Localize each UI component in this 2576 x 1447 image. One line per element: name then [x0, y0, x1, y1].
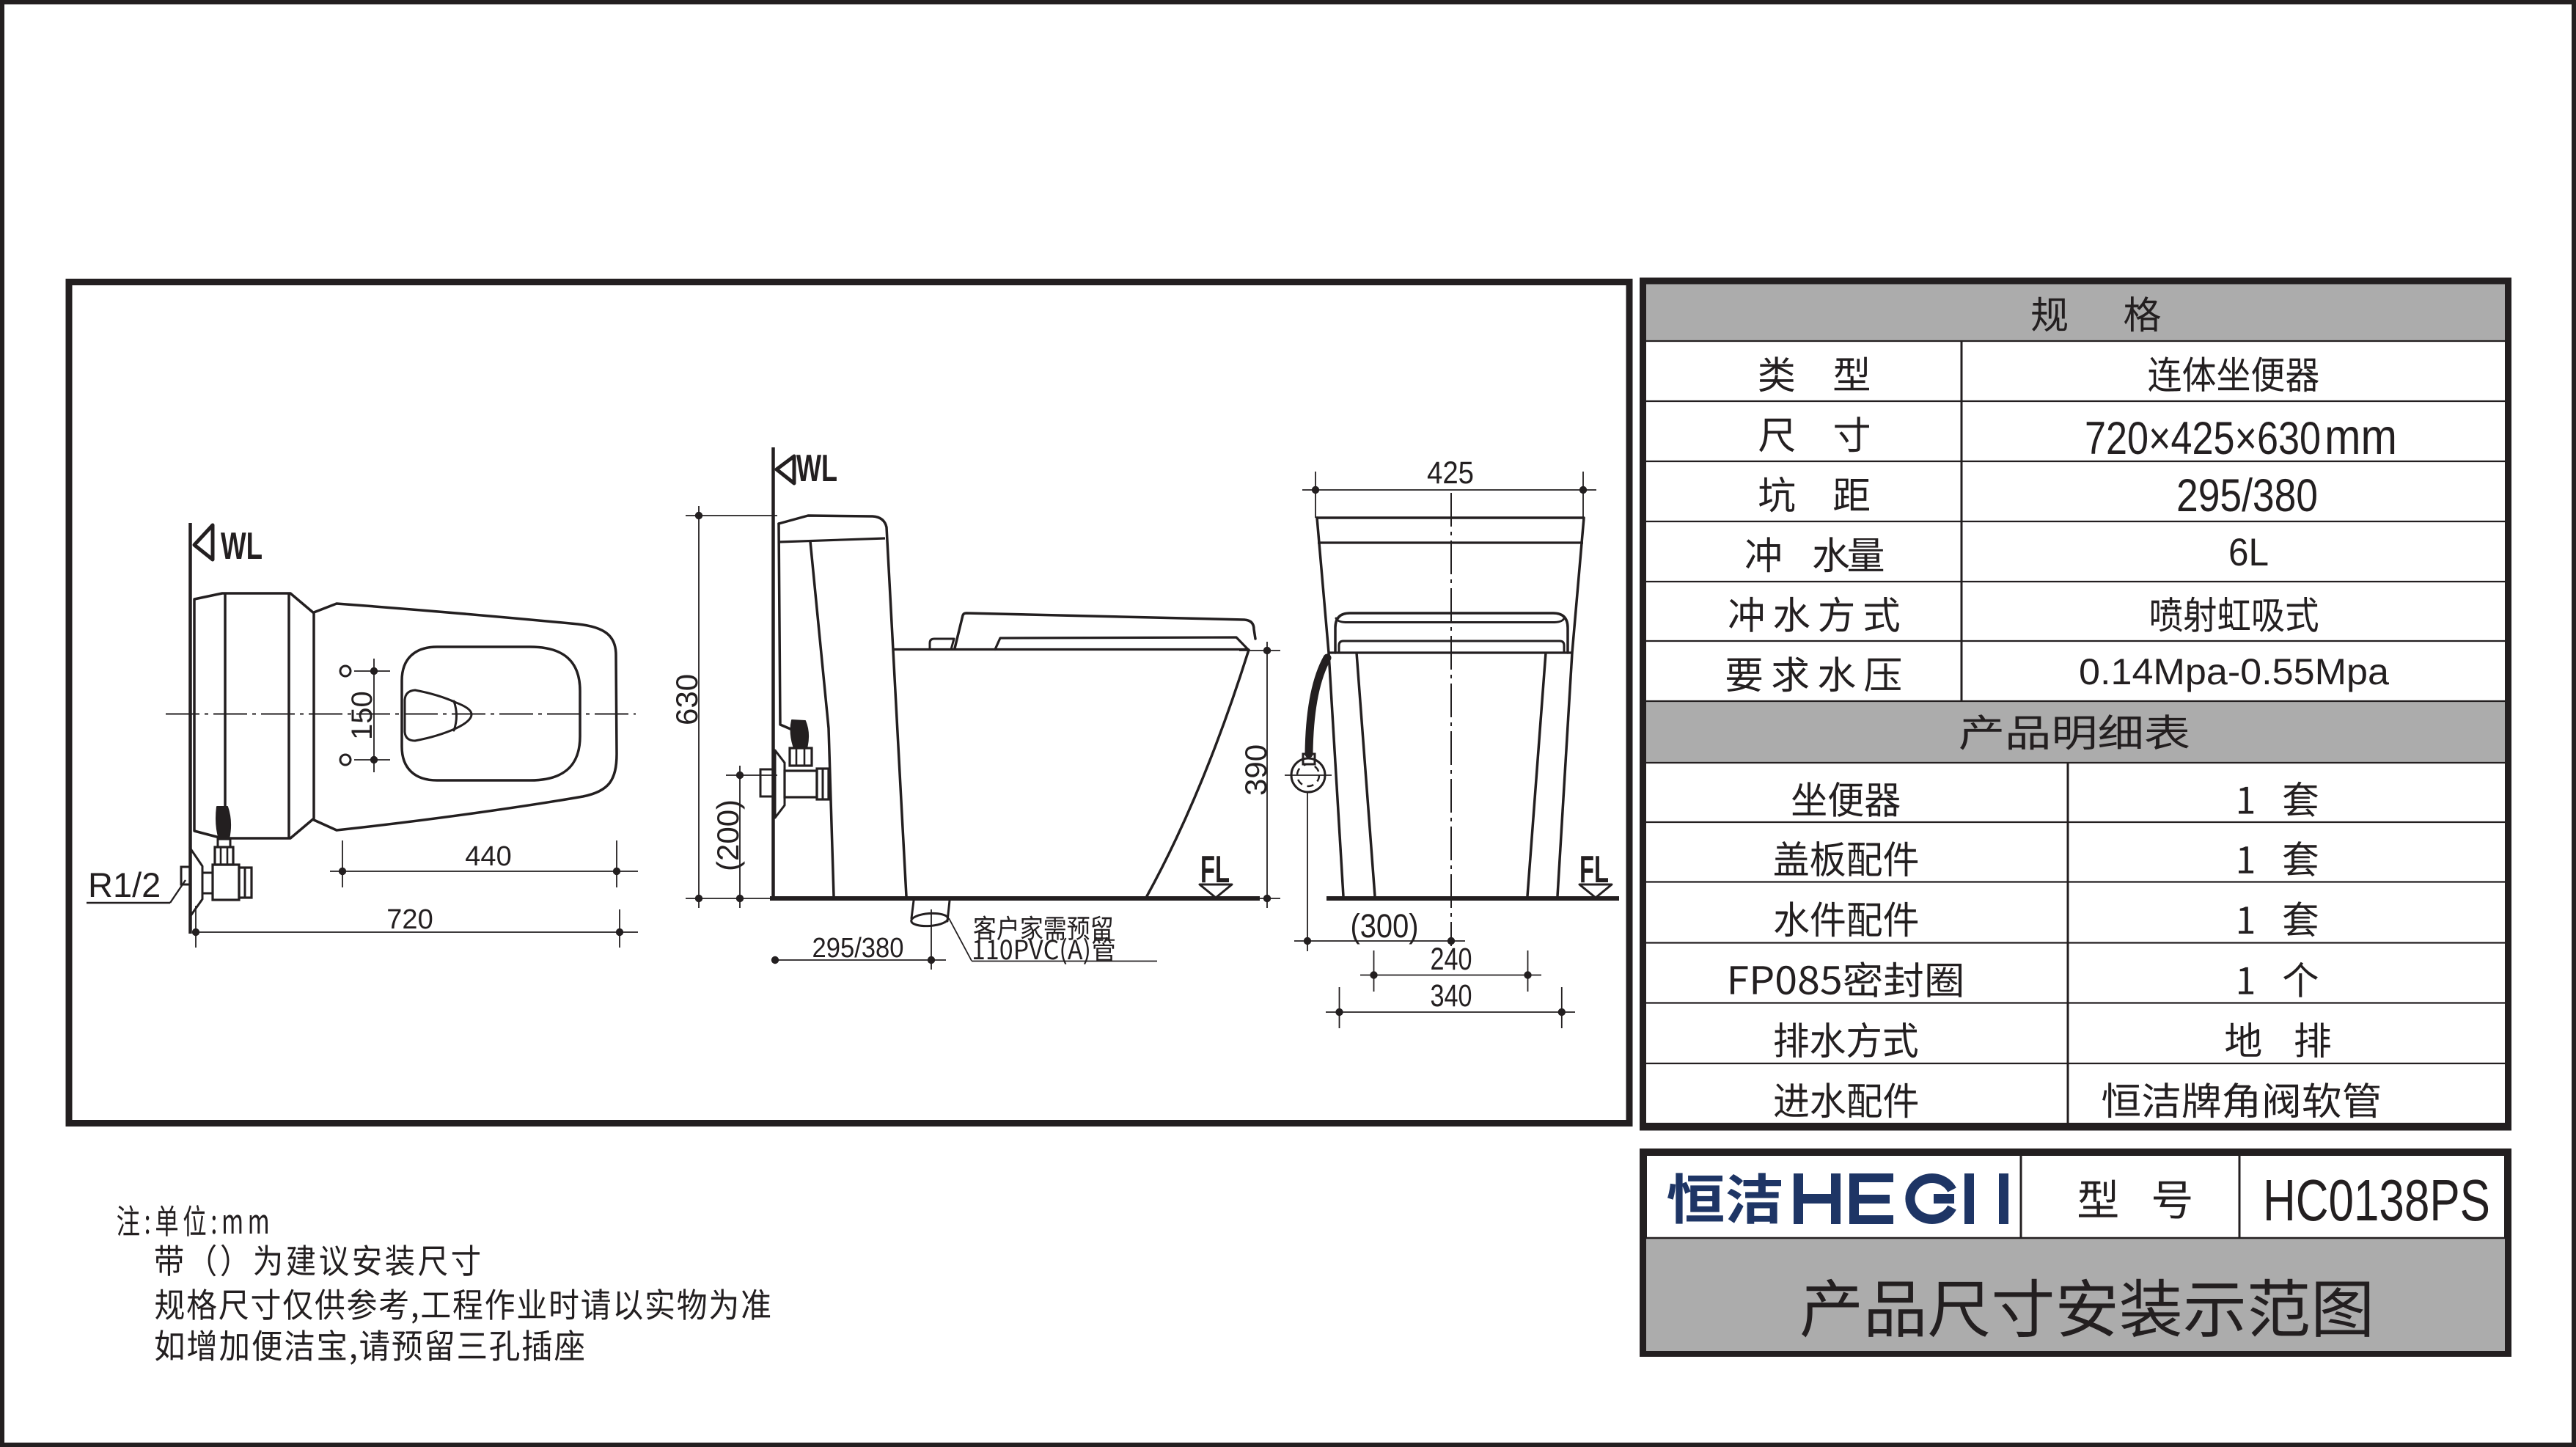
svg-text:150: 150 [346, 691, 378, 740]
svg-text:340: 340 [1431, 978, 1472, 1014]
svg-text:HC0138PS: HC0138PS [2263, 1168, 2490, 1233]
svg-text:440: 440 [465, 841, 511, 872]
svg-text:6L: 6L [2228, 531, 2269, 574]
svg-text:720×425×630: 720×425×630 [2085, 413, 2321, 464]
svg-text:(300): (300) [1351, 907, 1419, 945]
svg-text:630: 630 [669, 674, 704, 725]
svg-text:R1/2: R1/2 [88, 865, 161, 904]
svg-text:0.14Mpa-0.55Mpa: 0.14Mpa-0.55Mpa [2079, 651, 2389, 692]
svg-text:mm: mm [2324, 409, 2397, 465]
svg-text:295/380: 295/380 [2176, 470, 2318, 521]
svg-text:(200): (200) [711, 799, 745, 871]
svg-text:295/380: 295/380 [812, 933, 904, 964]
svg-text:240: 240 [1431, 942, 1472, 977]
svg-text:390: 390 [1239, 744, 1273, 796]
svg-text:WL: WL [796, 447, 837, 490]
svg-text:720: 720 [386, 904, 433, 935]
svg-text:425: 425 [1427, 455, 1474, 491]
svg-text:WL: WL [221, 525, 263, 568]
